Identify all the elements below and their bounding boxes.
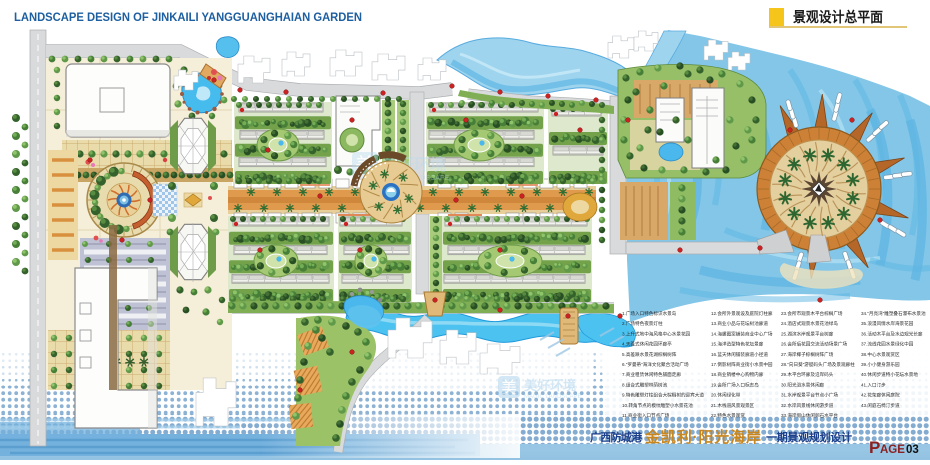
- svg-text:8.组合式雕塑林荫树池: 8.组合式雕塑林荫树池: [622, 381, 668, 388]
- svg-text:5.高差跌水景花湖棕榈树阵: 5.高差跌水景花湖棕榈树阵: [622, 351, 677, 358]
- svg-text:19.会所广场入口标志岛: 19.会所广场入口标志岛: [711, 381, 759, 388]
- svg-text:25.湖滨水岸观景平台树廊: 25.湖滨水岸观景平台树廊: [781, 330, 834, 337]
- svg-text:2.广场特色夜景灯柱: 2.广场特色夜景灯柱: [622, 320, 663, 327]
- svg-text:16.蓝天休闲铺装廊道小径道: 16.蓝天休闲铺装廊道小径道: [711, 351, 768, 358]
- svg-text:景观设计总平面: 景观设计总平面: [793, 9, 883, 25]
- svg-text:广西防城港: 广西防城港: [590, 430, 643, 444]
- svg-text:27.海岸椰子棕榈树阵广场: 27.海岸椰子棕榈树阵广场: [781, 351, 834, 358]
- svg-text:37.流线花园水景绿化中园: 37.流线花园水景绿化中园: [861, 341, 914, 348]
- svg-text:24.酒店式观景水景花池绿岛: 24.酒店式观景水景花池绿岛: [781, 320, 838, 327]
- svg-text:38.中心水景观赏区: 38.中心水景观赏区: [861, 351, 900, 358]
- svg-text:4.天蓬式休闲花园环廊亭: 4.天蓬式休闲花园环廊亭: [622, 341, 672, 348]
- svg-text:美: 美: [501, 379, 517, 397]
- svg-text:42.花架廊休闲庭院: 42.花架廊休闲庭院: [861, 392, 900, 399]
- svg-text:3.上升式地中海风格中心水景花园: 3.上升式地中海风格中心水景花园: [622, 330, 691, 337]
- svg-text:20.休闲绿化带: 20.休闲绿化带: [711, 392, 741, 399]
- svg-text:30.阳光浴水景休闲廊: 30.阳光浴水景休闲廊: [781, 381, 825, 388]
- svg-text:35.浪漫风情水岸海景花园: 35.浪漫风情水岸海景花园: [861, 320, 914, 327]
- svg-text:14.海螺图案铺装商业中心广场: 14.海螺图案铺装商业中心广场: [711, 330, 773, 337]
- svg-text:23.会所市观景木平台棕榈广场: 23.会所市观景木平台棕榈广场: [781, 310, 843, 317]
- svg-text:43.闲庭石椅汀步道: 43.闲庭石椅汀步道: [861, 402, 900, 409]
- svg-text:9.特色雕塑灯柱组合大棕榈树的迎宾大道: 9.特色雕塑灯柱组合大棕榈树的迎宾大道: [622, 392, 704, 399]
- svg-text:40.休闲步道特小花坛水景地: 40.休闲步道特小花坛水景地: [861, 371, 918, 378]
- svg-text:31.水岸观景平台节点小广场: 31.水岸观景平台节点小广场: [781, 392, 838, 399]
- svg-text:28.“向日葵”游艇码头广场及景观廊柱: 28.“向日葵”游艇码头广场及景观廊柱: [781, 361, 855, 368]
- svg-text:18.商业销楼中心购物内廊: 18.商业销楼中心购物内廊: [711, 371, 764, 378]
- svg-text:21.木栈道风景观景区: 21.木栈道风景观景区: [711, 402, 755, 409]
- svg-text:10.转角节点的模纹雕塑小水景花池: 10.转角节点的模纹雕塑小水景花池: [622, 402, 693, 409]
- svg-text:6.“罗曼蒂”海洋文化聚合活动广场: 6.“罗曼蒂”海洋文化聚合活动广场: [622, 361, 689, 368]
- svg-text:39.小小健身游乐园: 39.小小健身游乐园: [861, 361, 900, 368]
- svg-text:03: 03: [906, 444, 919, 456]
- svg-text:13.商业小品与花坛树池廊道: 13.商业小品与花坛树池廊道: [711, 320, 768, 327]
- svg-text:MAGIC LANDSCAPE: MAGIC LANDSCAPE: [524, 394, 582, 400]
- svg-text:12.会所外景观设及庭院灯柱廊: 12.会所外景观设及庭院灯柱廊: [711, 310, 773, 317]
- svg-text:P: P: [869, 438, 880, 457]
- svg-text:11.商业街入口节点广场: 11.商业街入口节点广场: [622, 412, 670, 419]
- svg-text:34.“月亮湾”雕塑叠石瀑布水景池: 34.“月亮湾”雕塑叠石瀑布水景池: [861, 310, 926, 317]
- svg-text:22.特色水景观赏: 22.特色水景观赏: [711, 412, 745, 419]
- svg-text:AGE: AGE: [880, 444, 905, 456]
- svg-text:LANDSCAPE DESIGN OF JINKAILI Y: LANDSCAPE DESIGN OF JINKAILI YANGGUANGHA…: [14, 10, 362, 24]
- svg-text:41.入口汀步: 41.入口汀步: [861, 381, 886, 388]
- svg-text:32.水岸风景线休闲游步道: 32.水岸风景线休闲游步道: [781, 402, 834, 409]
- svg-text:36.活动木平台及水边观光长廊: 36.活动木平台及水边观光长廊: [861, 330, 923, 337]
- svg-text:15.海洋造型特色花坛景廊: 15.海洋造型特色花坛景廊: [711, 341, 764, 348]
- svg-text:7.商业租赁休闲特色铺面走廊: 7.商业租赁休闲特色铺面走廊: [622, 371, 681, 378]
- svg-text:29.木平台环廊及沿岸码头: 29.木平台环廊及沿岸码头: [781, 371, 834, 378]
- svg-text:1.广场入口特色标识水景岛: 1.广场入口特色标识水景岛: [622, 310, 677, 317]
- svg-text:33.海岸假山休闲卵石水平台: 33.海岸假山休闲卵石水平台: [781, 412, 838, 419]
- svg-text:26.会所后花园交流活动场景广场: 26.会所后花园交流活动场景广场: [781, 341, 848, 348]
- svg-text:金凯利·阳光海岸: 金凯利·阳光海岸: [644, 428, 761, 446]
- svg-text:一期景观规划设计: 一期景观规划设计: [766, 430, 852, 444]
- svg-text:美好环境: 美好环境: [524, 378, 576, 393]
- svg-text:17.倒影树阵商业街小水景中园: 17.倒影树阵商业街小水景中园: [711, 361, 773, 368]
